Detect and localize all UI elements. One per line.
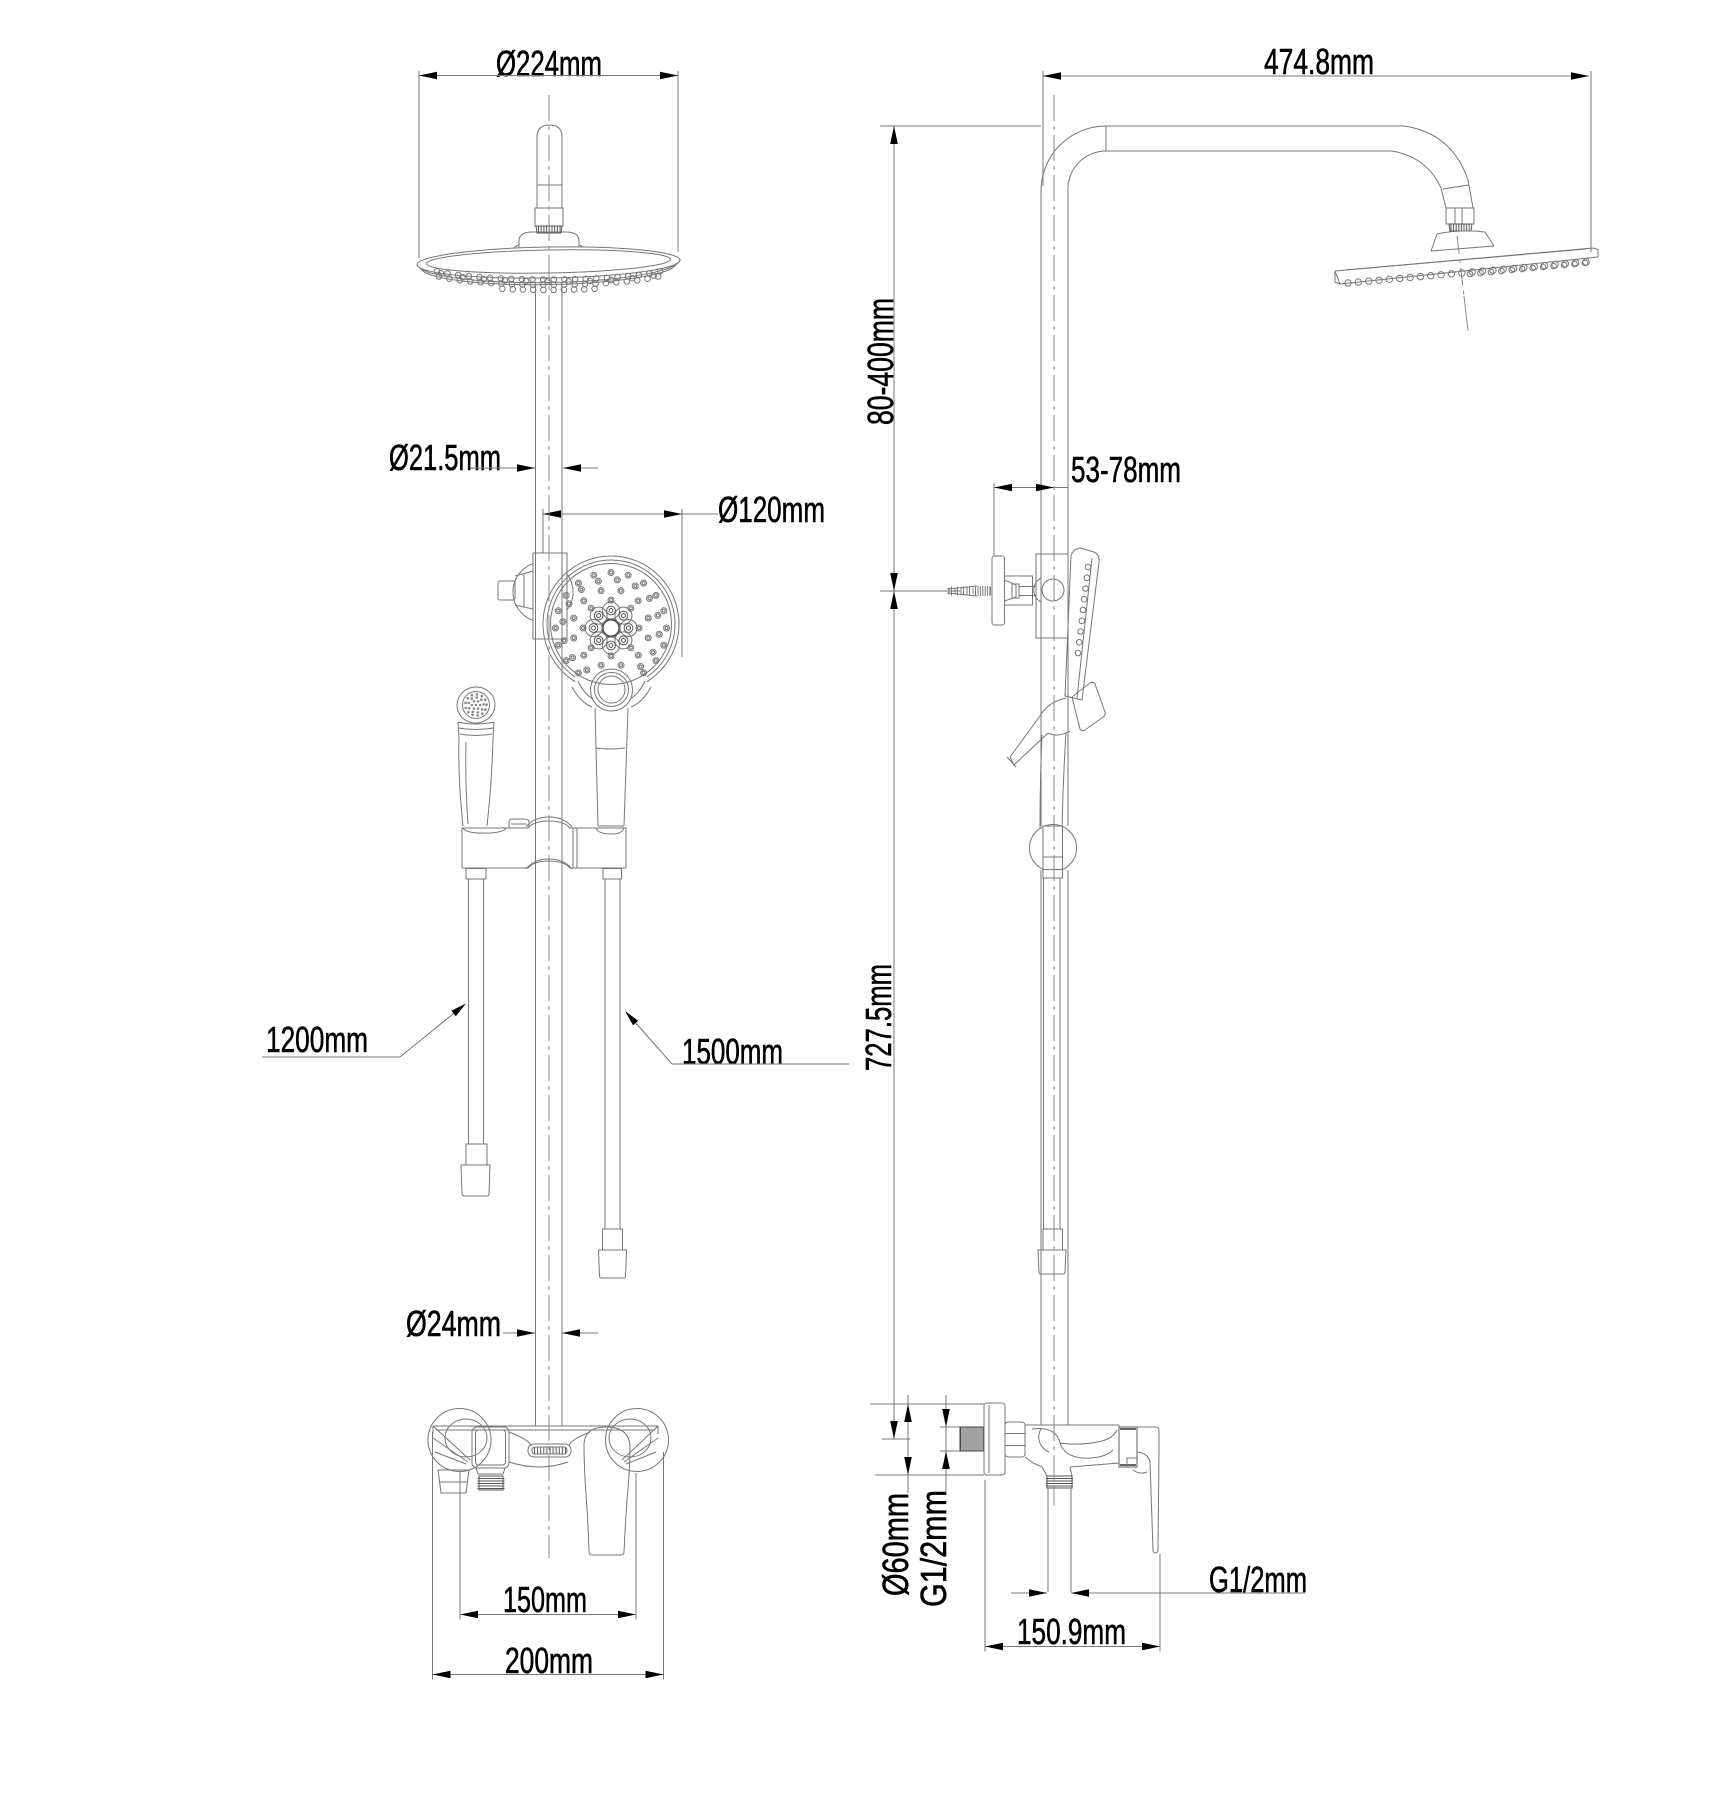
svg-text:53-78mm: 53-78mm [1071, 449, 1181, 490]
svg-text:80-400mm: 80-400mm [860, 298, 901, 425]
svg-text:G1/2mm: G1/2mm [1209, 1559, 1307, 1600]
svg-text:Ø21.5mm: Ø21.5mm [389, 437, 501, 478]
svg-text:Ø24mm: Ø24mm [406, 1303, 501, 1344]
svg-text:Ø224mm: Ø224mm [496, 43, 602, 84]
svg-text:150.9mm: 150.9mm [1017, 1611, 1126, 1652]
svg-text:Ø60mm: Ø60mm [875, 1493, 916, 1596]
svg-text:1500mm: 1500mm [682, 1031, 783, 1072]
svg-text:727.5mm: 727.5mm [858, 964, 899, 1071]
svg-text:Ø120mm: Ø120mm [718, 489, 825, 530]
svg-text:G1/2mm: G1/2mm [913, 1490, 954, 1607]
svg-text:1200mm: 1200mm [266, 1019, 368, 1060]
svg-text:150mm: 150mm [503, 1579, 587, 1620]
